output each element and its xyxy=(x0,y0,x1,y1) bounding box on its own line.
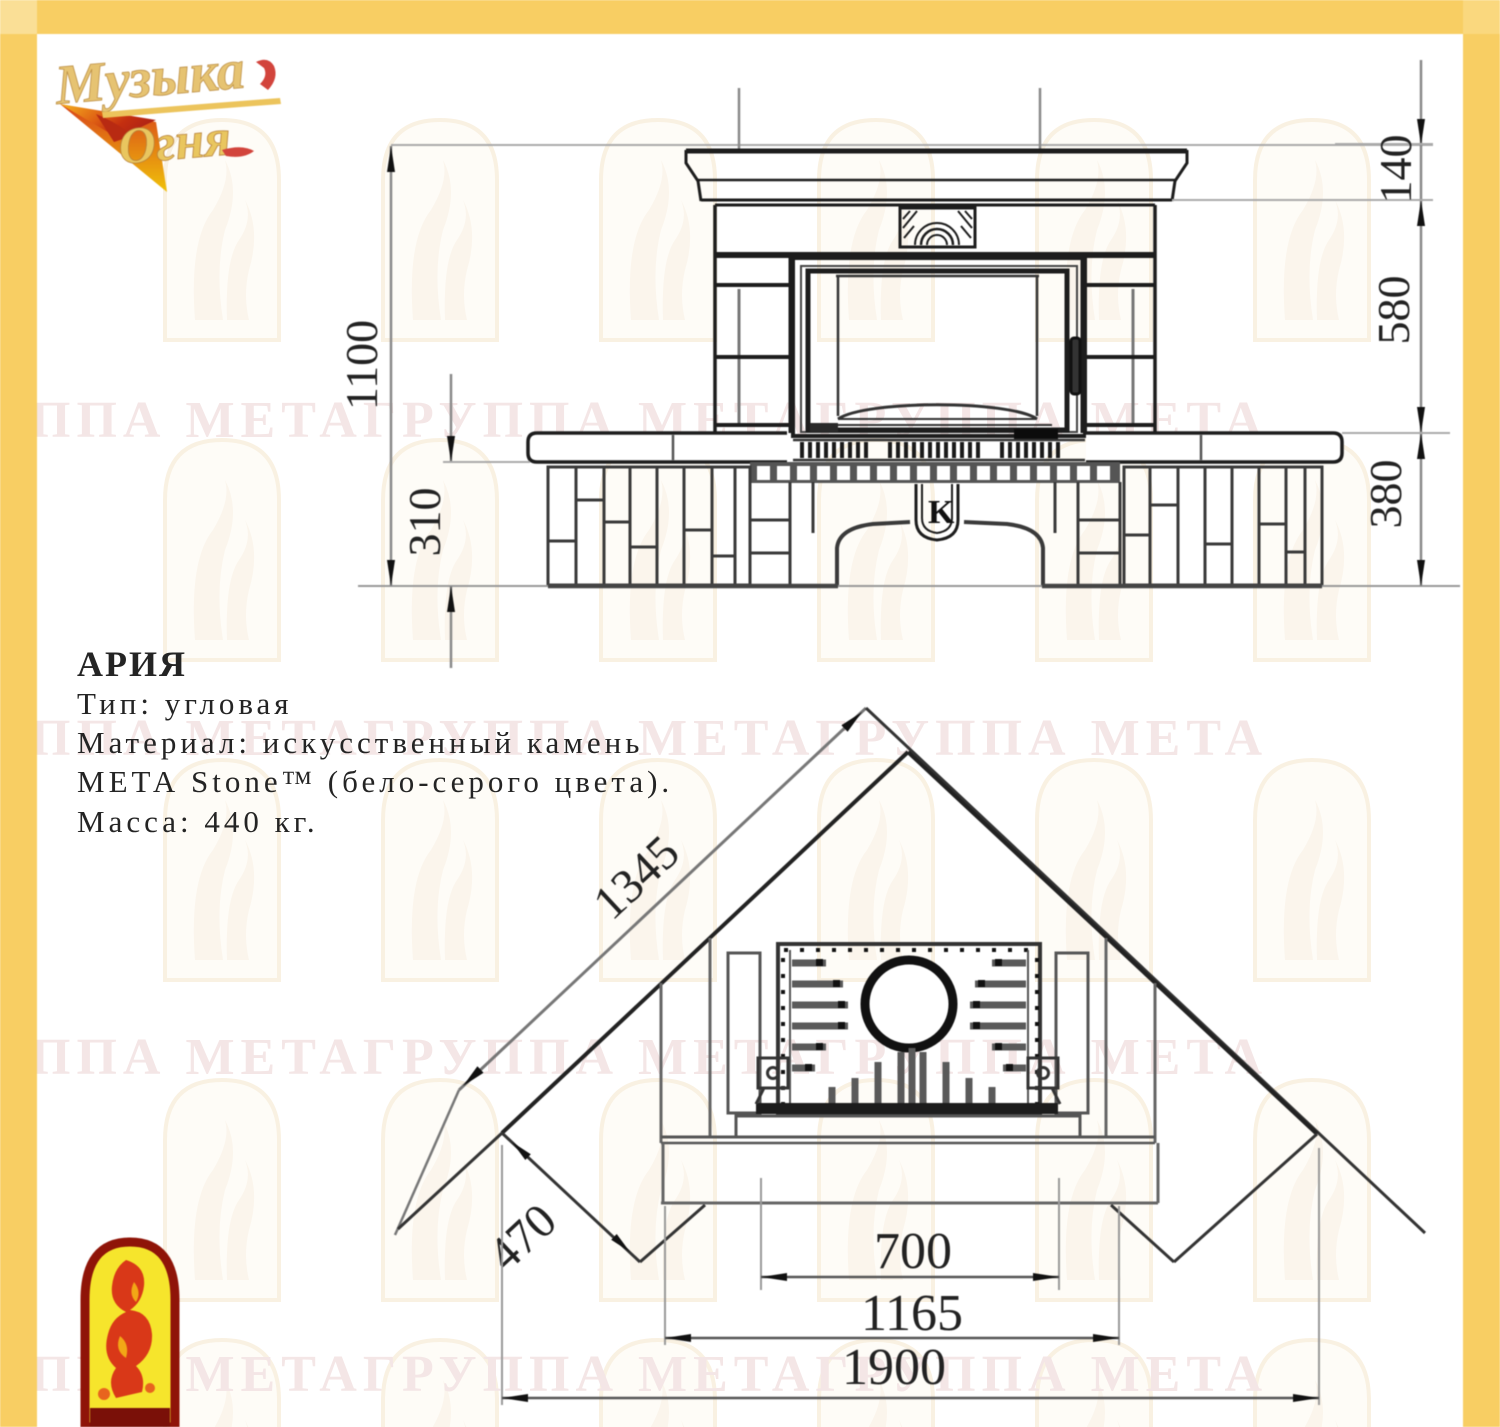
svg-text:140: 140 xyxy=(1370,135,1421,204)
svg-text:1900: 1900 xyxy=(842,1339,946,1396)
svg-text:700: 700 xyxy=(874,1223,952,1280)
svg-text:580: 580 xyxy=(1368,276,1419,345)
svg-text:1100: 1100 xyxy=(336,320,387,410)
svg-text:Огня: Огня xyxy=(116,109,233,176)
svg-text:310: 310 xyxy=(399,488,450,557)
svg-text:1165: 1165 xyxy=(861,1285,963,1342)
svg-text:1345: 1345 xyxy=(583,826,689,930)
svg-text:470: 470 xyxy=(478,1194,567,1282)
svg-text:K: K xyxy=(928,494,955,531)
svg-text:380: 380 xyxy=(1360,460,1411,529)
